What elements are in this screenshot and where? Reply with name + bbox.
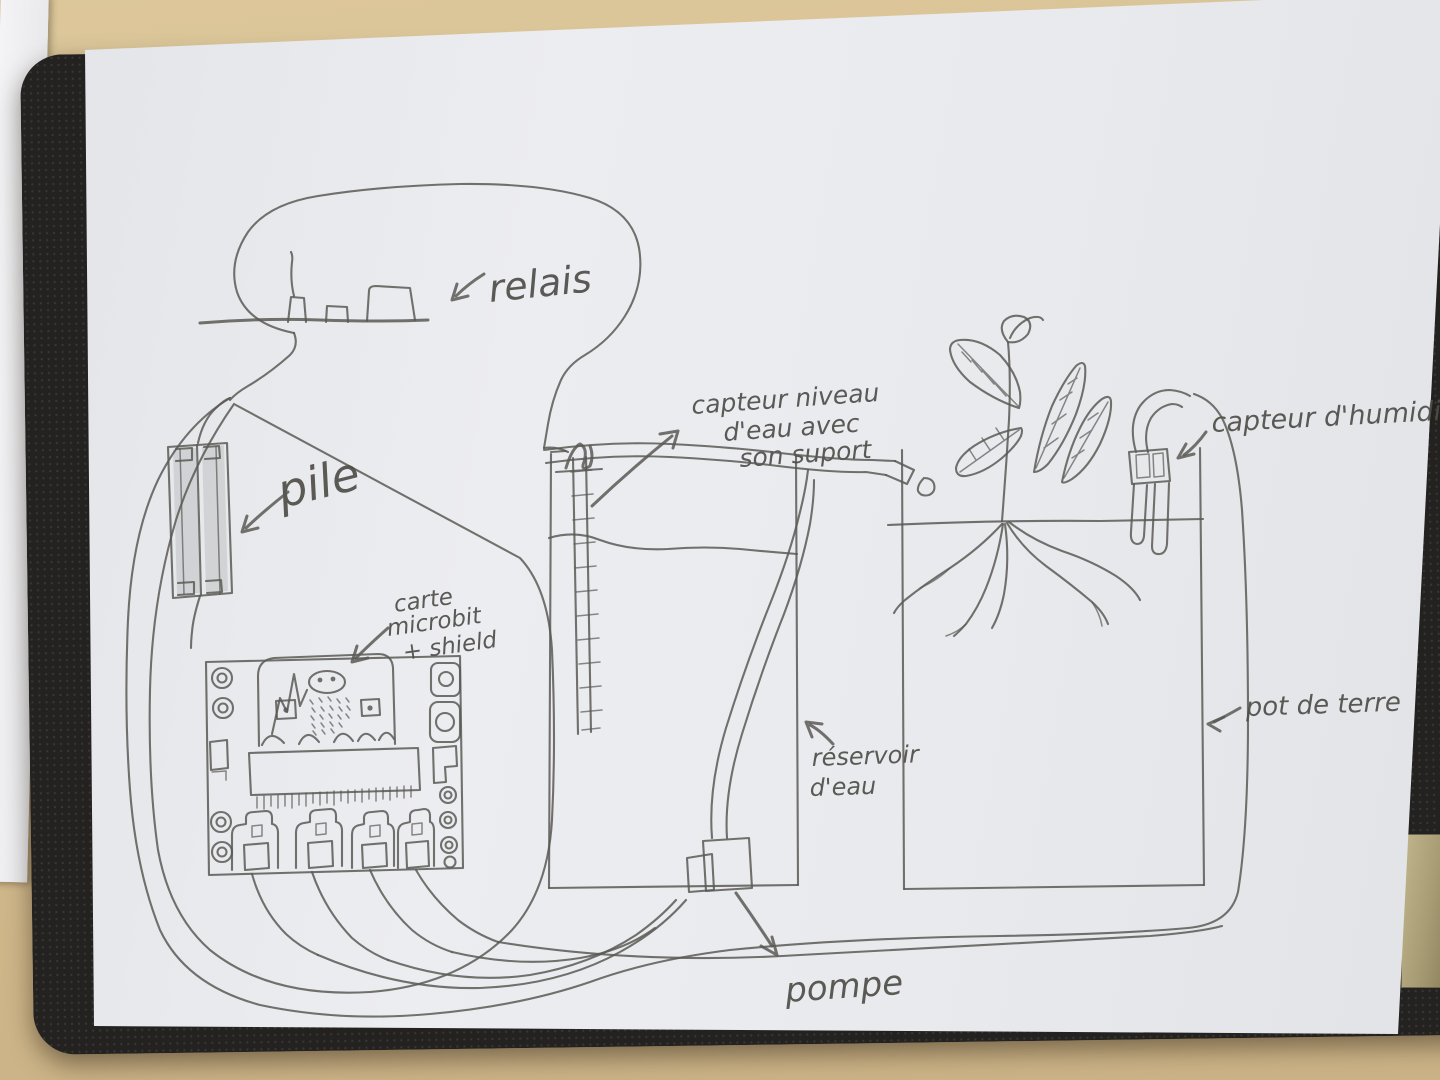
relais-arrow [456,274,484,296]
pompe-label-text: pompe [783,963,905,1011]
soil-line [888,519,1203,525]
reservoir-label-line2: d'eau [809,772,876,802]
reservoir-arrow [810,725,833,744]
pot-label-text: pot de terre [1244,688,1401,723]
face-doodle [309,671,345,693]
relay-drawing [200,184,640,448]
water-line [549,534,797,554]
label-pot: pot de terre [1208,688,1401,731]
capteur-niveau-arrow [592,436,672,506]
lightning-doodle [272,674,307,734]
plant-drawing [894,316,1140,636]
humidity-sensor-drawing [1129,390,1190,554]
relais-label-text: relais [486,256,593,311]
roots [894,524,1002,613]
capteur-humidite-label-text: capteur d'humidité [1211,395,1440,439]
label-relais: relais [452,256,594,311]
reservoir-label-line1: réservoir [811,740,921,772]
led-matrix-dots [310,697,350,735]
pile-label-text: pile [271,446,366,519]
photo-scene: Lenovo relais [0,0,1440,1080]
connector-pins [257,786,411,809]
label-capteur-niveau: capteur niveau d'eau avec son suport [592,378,880,506]
pompe-arrow [736,893,772,946]
water-drop [918,478,935,496]
pencil-sketch: relais pile [0,0,1440,1080]
label-pile: pile [242,446,365,532]
pot-drawing [888,448,1204,889]
label-pompe: pompe [736,893,904,1011]
microbit-board-drawing [206,654,463,875]
label-capteur-humidite: capteur d'humidité [1178,395,1440,458]
pump-drawing [687,838,752,892]
battery-drawing [168,398,232,648]
